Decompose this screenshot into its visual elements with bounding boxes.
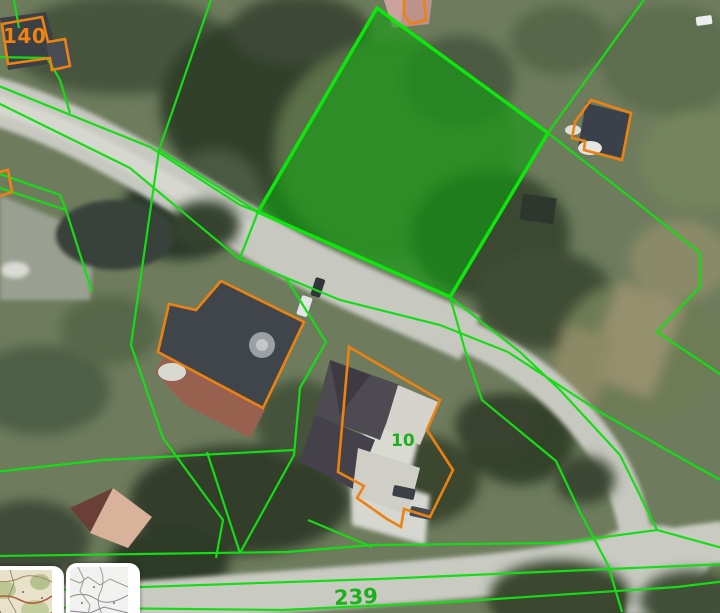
basemap-thumbnail-color[interactable] bbox=[0, 566, 64, 613]
map-canvas[interactable]: 140 239 10 bbox=[0, 0, 720, 613]
building-number-label: 140 bbox=[3, 24, 46, 48]
basemap-thumbnail-gray-preview bbox=[70, 567, 136, 613]
garden-shed bbox=[519, 194, 556, 224]
parcel-number-label: 239 bbox=[333, 584, 378, 610]
map-viewport[interactable]: 140 239 10 bbox=[0, 0, 720, 613]
basemap-thumbnail-gray[interactable] bbox=[66, 563, 140, 613]
house-number-label: 10 bbox=[391, 431, 415, 451]
basemap-thumbnail-color-preview bbox=[0, 570, 60, 613]
